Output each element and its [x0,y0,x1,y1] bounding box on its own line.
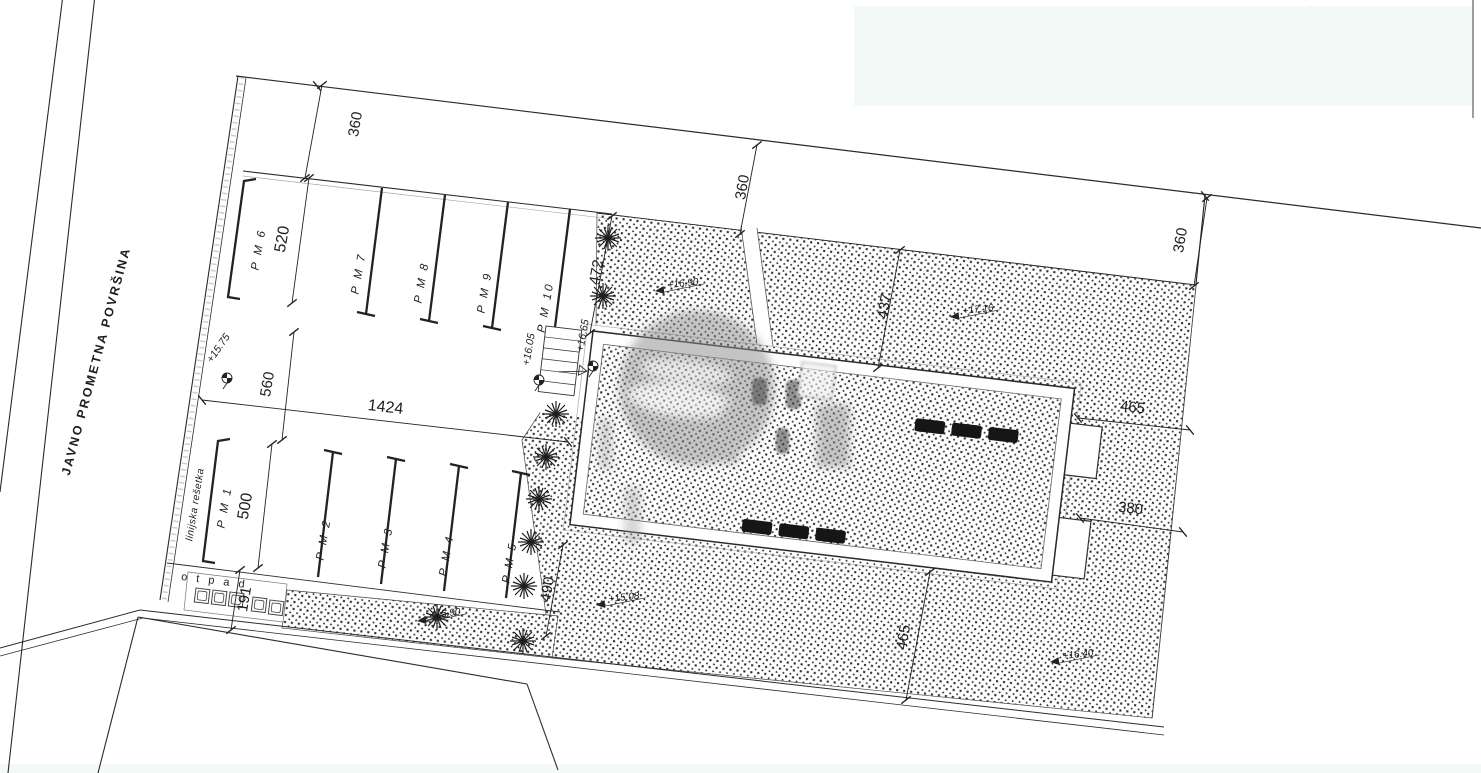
dim-label-east-yard-lower: 380 [1117,499,1144,519]
parking-spot-label-pm4: P M 4 [437,534,456,578]
linear-grate-label: linijska rešetka [184,467,206,541]
left-road [0,0,95,773]
road-name-label: JAVNO PROMETNA POVRŠINA [58,245,134,477]
parking-spot-label-pm1: P M 1 [215,486,234,530]
dim-label-setback-front: 360 [345,110,366,138]
dim-label-pm6-width: 520 [272,225,293,254]
elevation-label-street: +15.75 [204,331,233,365]
benchmark-symbol [222,373,232,389]
parking-spot-label-pm6: P M 6 [249,228,268,272]
dim-label-setback-mid: 360 [732,173,753,201]
parking-spot-label-pm7: P M 7 [349,252,368,296]
site-plan-svg: JAVNO PROMETNA POVRŠINA linijska rešetka [0,0,1481,773]
dim-label-row-length: 1424 [367,397,404,418]
tree-symbol [511,573,537,599]
parking-spot-label-pm8: P M 8 [412,261,431,305]
parking-spot-label-pm2: P M 2 [314,518,333,562]
dim-label-setback-right: 360 [1170,226,1191,254]
parking-spot-label-pm3: P M 3 [376,526,395,570]
site-plan-drawing: SITUACIJA GRAĐEVNE ČESTICE S PRIKAZOM RE… [0,0,1481,773]
dim-label-aisle: 560 [257,370,278,398]
dim-label-east-yard-upper: 465 [1119,398,1146,418]
dim-label-pm1-width: 500 [235,492,256,521]
parking-spot-label-pm9: P M 9 [475,271,494,315]
parking-spot-label-pm5: P M 5 [500,541,519,585]
